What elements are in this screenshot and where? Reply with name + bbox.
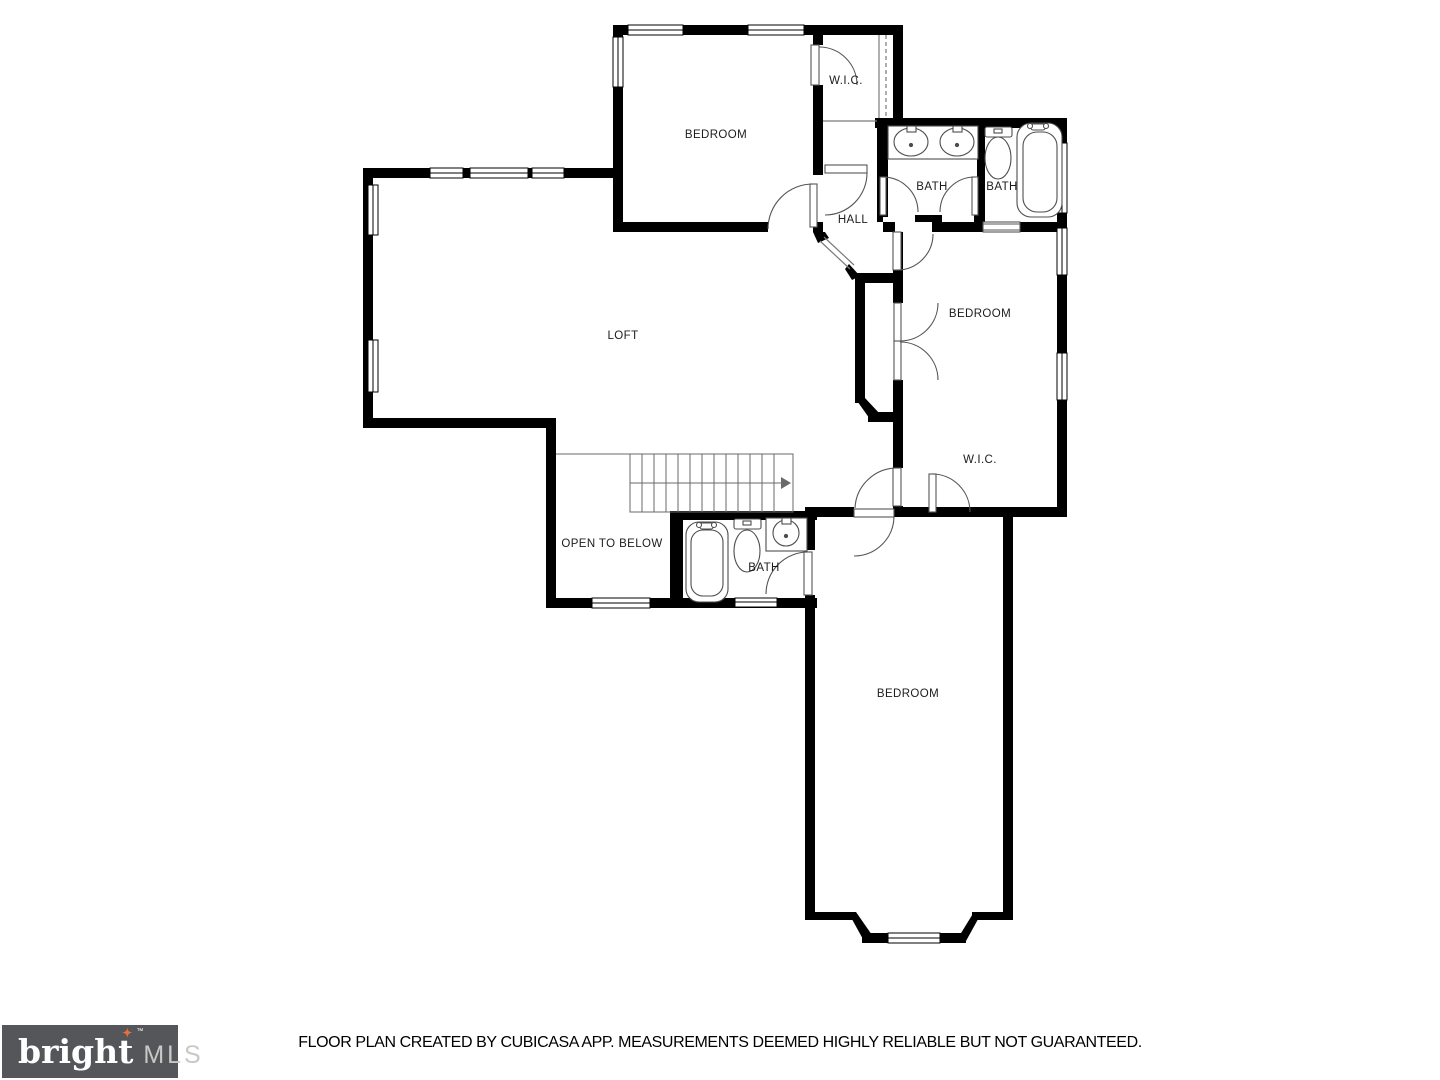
room-label-wic-top: W.I.C. [829,75,863,87]
door-icon [929,474,970,512]
window-icon [430,168,463,178]
bathtub-icon [686,522,728,602]
room-label-bath-bottom: BATH [748,562,779,574]
window-icon [532,168,564,178]
room-label-bedroom-bottom: BEDROOM [877,688,939,700]
star-icon: ✦ [122,1027,132,1039]
window-icon [1057,228,1067,275]
door-icon [768,184,817,229]
window-icon [1057,353,1067,400]
window-icon [748,25,804,35]
wall-layer [363,25,1067,943]
window-icon [628,25,683,35]
logo-mls-text: MLS [143,1041,203,1070]
window-icon [592,598,650,608]
window-icon [735,598,777,607]
window-icon [888,933,940,943]
staircase [556,454,793,512]
room-label-hall: HALL [838,214,869,226]
thin-line-layer [820,35,886,269]
door-icon [825,165,867,215]
door-icon [855,468,901,508]
door-icon [854,509,894,556]
door-icon [894,303,938,342]
trademark-symbol: ™ [136,1028,143,1035]
room-label-bedroom-right: BEDROOM [949,308,1011,320]
logo-brand-word: bright [18,1032,133,1071]
double-vanity-icon [888,126,978,159]
room-label-bedroom-top: BEDROOM [685,129,747,141]
room-label-wic-middle: W.I.C. [963,454,997,466]
room-label-bath-top-right: BATH [986,181,1017,193]
door-icon [893,232,933,270]
floor-plan: W.I.C. BEDROOM BATH BATH HALL LOFT BEDRO… [0,0,1440,1010]
room-label-bath-jack-jill: BATH [916,181,947,193]
disclaimer-text: FLOOR PLAN CREATED BY CUBICASA APP. MEAS… [0,1034,1440,1052]
room-label-open-to-below: OPEN TO BELOW [561,538,662,550]
window-icon [368,185,378,235]
bathtub-icon [1017,123,1062,217]
window-layer [368,25,1067,943]
floor-plan-svg: W.I.C. BEDROOM BATH BATH HALL LOFT BEDRO… [0,0,1440,1010]
window-icon [470,168,528,178]
logo-brand-text: bright✦™ [18,1025,133,1078]
window-icon [613,37,623,87]
toilet-icon [985,127,1012,179]
brightmls-logo: bright✦™ MLS [2,1025,178,1078]
room-label-loft: LOFT [608,330,639,342]
floor-plan-page: W.I.C. BEDROOM BATH BATH HALL LOFT BEDRO… [0,0,1440,1080]
window-icon [368,340,378,392]
sink-icon [766,518,807,551]
door-icon [894,341,938,380]
stair-direction-arrow [781,477,791,489]
cased-opening [983,222,1020,232]
door-icon [880,177,918,215]
